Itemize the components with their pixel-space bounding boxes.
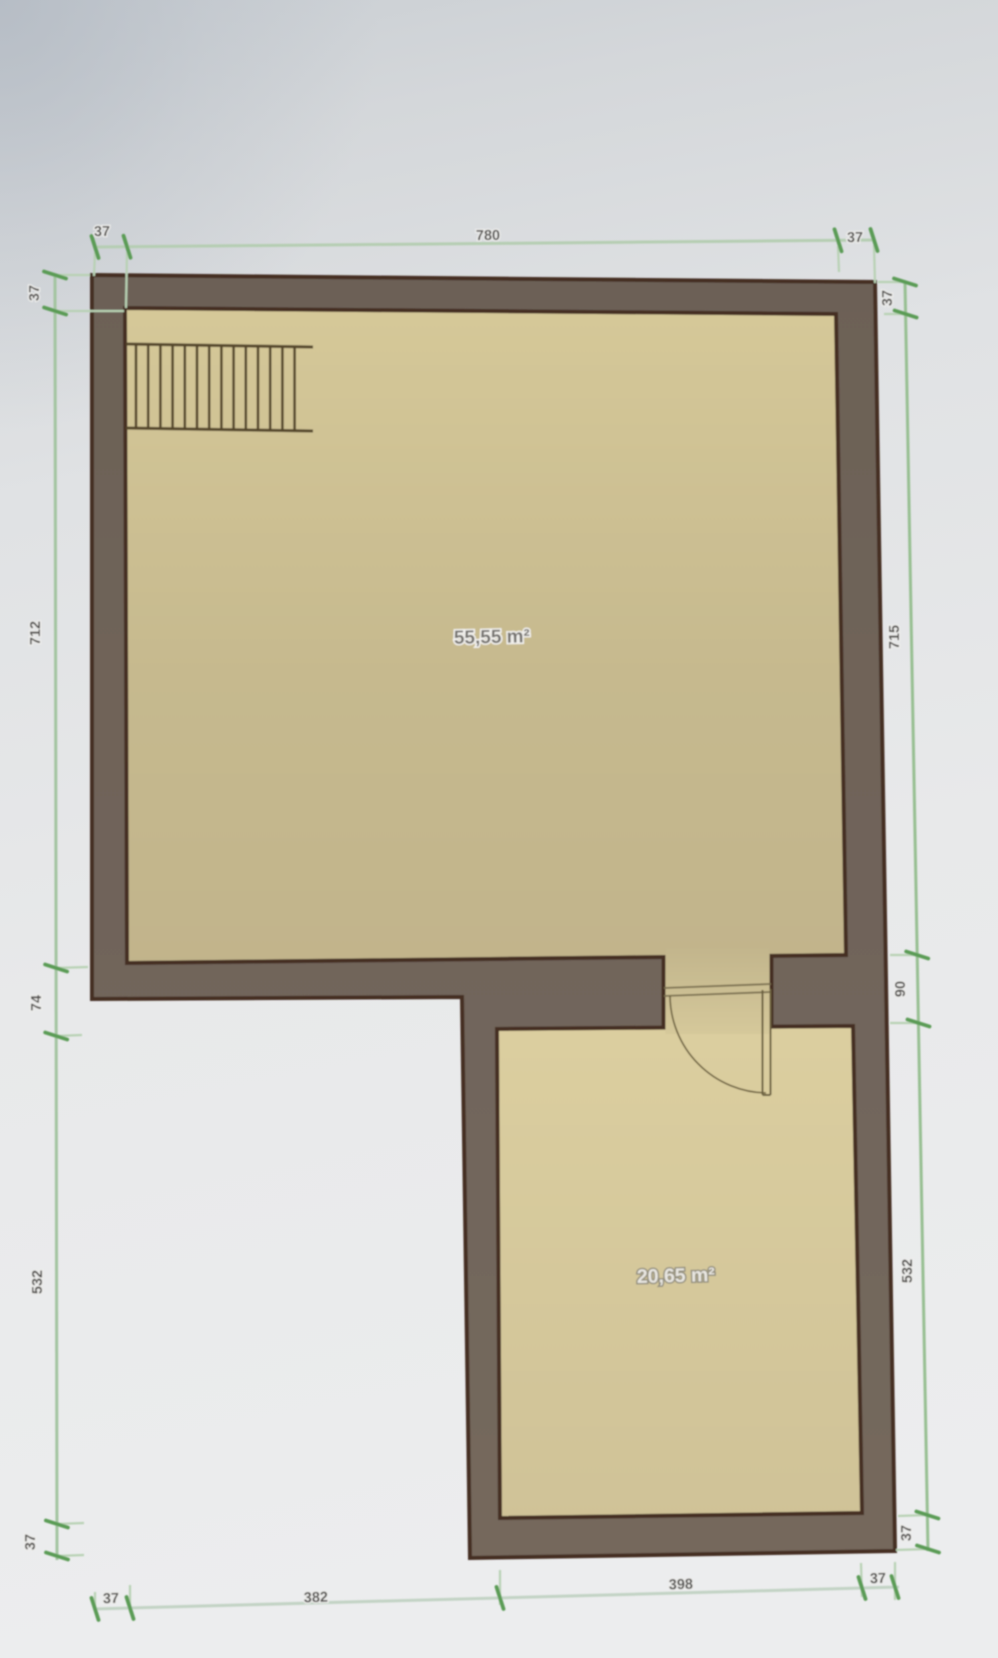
svg-text:37: 37 (103, 1591, 120, 1607)
svg-text:532: 532 (900, 1259, 916, 1283)
svg-text:712: 712 (28, 621, 44, 645)
svg-text:37: 37 (27, 285, 43, 301)
svg-text:90: 90 (893, 981, 909, 997)
svg-text:37: 37 (880, 290, 896, 306)
svg-text:382: 382 (304, 1590, 329, 1607)
svg-text:37: 37 (847, 230, 863, 246)
svg-text:37: 37 (23, 1534, 39, 1550)
svg-text:20,65 m²: 20,65 m² (637, 1264, 716, 1288)
svg-text:55,55 m²: 55,55 m² (454, 626, 530, 649)
svg-text:37: 37 (899, 1525, 915, 1541)
svg-text:532: 532 (30, 1270, 46, 1294)
svg-text:715: 715 (887, 625, 903, 649)
svg-text:780: 780 (476, 228, 500, 244)
svg-text:37: 37 (94, 224, 110, 240)
svg-text:74: 74 (29, 995, 45, 1011)
svg-text:398: 398 (669, 1577, 694, 1594)
svg-text:37: 37 (870, 1571, 887, 1587)
